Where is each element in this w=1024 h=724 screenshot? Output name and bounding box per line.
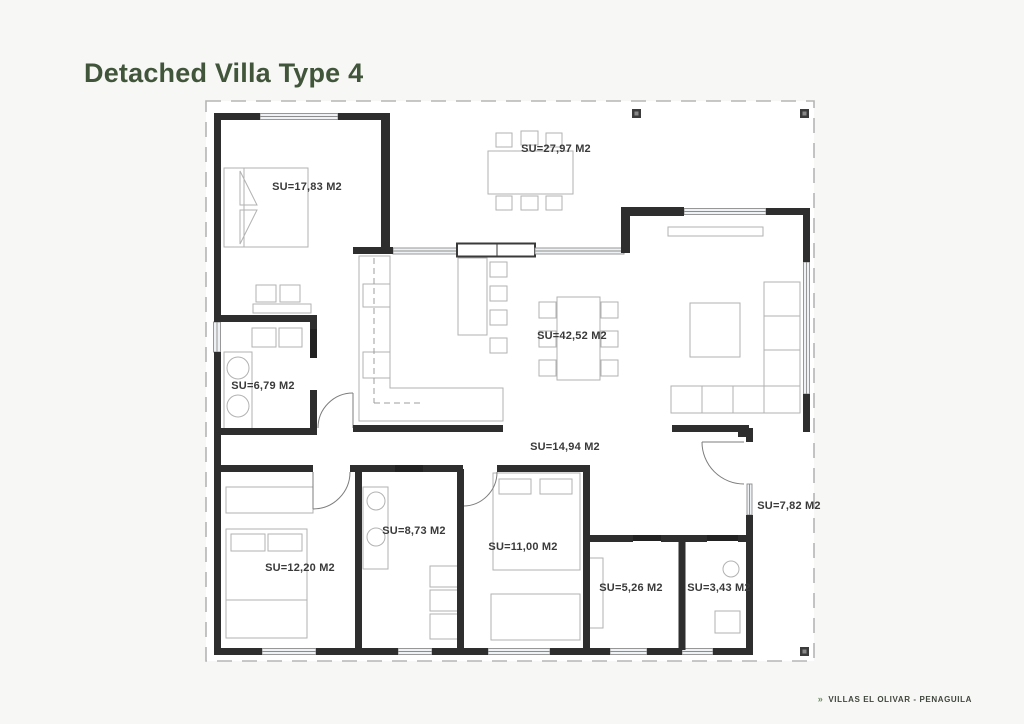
window xyxy=(398,649,432,655)
window xyxy=(747,484,752,515)
bathroom-3-area-label: SU=3,43 M2 xyxy=(687,582,750,594)
sliding-door xyxy=(633,535,661,541)
bedroom-2-area-label: SU=12,20 M2 xyxy=(265,562,335,574)
sliding-glass-door xyxy=(457,244,535,257)
window xyxy=(393,248,457,254)
window xyxy=(214,322,221,352)
pillar-core xyxy=(635,112,639,116)
window xyxy=(684,209,766,215)
page: Detached Villa Type 4 xyxy=(0,0,1024,724)
sliding-door xyxy=(707,535,738,541)
sliding-door xyxy=(310,329,317,358)
window xyxy=(610,649,647,655)
sliding-door xyxy=(395,465,423,472)
porch-area-label: SU=7,82 M2 xyxy=(757,500,820,512)
bedroom-1-area-label: SU=17,83 M2 xyxy=(272,181,342,193)
bathroom-1-area-label: SU=6,79 M2 xyxy=(231,380,294,392)
window xyxy=(682,649,713,655)
window xyxy=(260,114,338,120)
living-area-label: SU=42,52 M2 xyxy=(537,330,607,342)
bathroom-2-area-label: SU=8,73 M2 xyxy=(382,525,445,537)
window xyxy=(535,248,624,254)
bedroom-3-furniture xyxy=(491,473,580,640)
storage-area-label: SU=5,26 M2 xyxy=(599,582,662,594)
hallway-area-label: SU=14,94 M2 xyxy=(530,441,600,453)
footer: » VILLAS EL OLIVAR - PENAGUILA xyxy=(818,694,972,704)
window xyxy=(488,649,550,655)
floor-plan-drawing: SU=27,97 M2 SU=17,83 M2 SU=42,52 M2 SU=6… xyxy=(0,0,1024,724)
pillar-core xyxy=(803,112,807,116)
terrace-area-label: SU=27,97 M2 xyxy=(521,143,591,155)
floor-plan: SU=27,97 M2 SU=17,83 M2 SU=42,52 M2 SU=6… xyxy=(0,0,1024,724)
chevrons-icon: » xyxy=(818,694,824,704)
bedroom-3-area-label: SU=11,00 M2 xyxy=(488,541,557,553)
window xyxy=(262,649,316,655)
window xyxy=(804,262,810,394)
footer-project-name: VILLAS EL OLIVAR - PENAGUILA xyxy=(828,695,972,704)
entrance-step xyxy=(738,428,753,437)
pillar-core xyxy=(803,650,807,654)
